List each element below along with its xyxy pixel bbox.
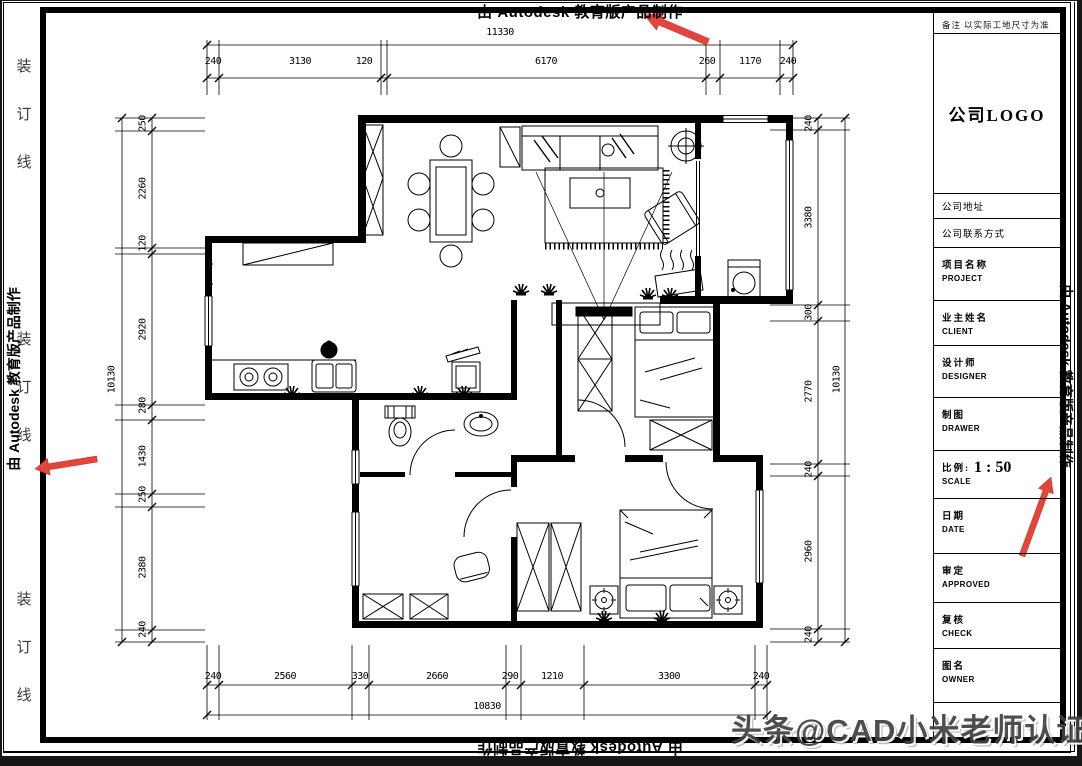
dim-bottom: 240	[183, 671, 243, 682]
kitchen-counter	[212, 243, 356, 392]
field-label-cn: 图名	[942, 658, 1060, 672]
red-arrow-left	[35, 456, 98, 475]
autodesk-watermark-right: 由 Autodesk 教育版产品制作	[1056, 256, 1076, 496]
dining-table	[408, 135, 494, 267]
company-address: 公司地址	[934, 193, 1060, 218]
cad-screenshot: { "watermarks": { "autodesk": "由 Autodes…	[0, 0, 1082, 766]
dim-bottom: 240	[731, 671, 791, 682]
coffee-table	[570, 178, 630, 208]
dim-left-total: 10130	[107, 350, 118, 410]
bedroom1-door-arc	[578, 400, 625, 447]
switch-mark	[284, 386, 300, 396]
field-label-en: CHECK	[942, 629, 1060, 638]
study-door-arc	[464, 490, 511, 537]
master-door-arc	[666, 462, 713, 509]
plant-mark	[513, 284, 529, 294]
field-client: 业主姓名 CLIENT	[934, 300, 1060, 345]
red-arrows	[35, 13, 1053, 557]
dim-top: 3130	[270, 56, 330, 67]
dim-left: 250	[138, 94, 149, 154]
dim-left: 120	[138, 214, 149, 274]
field-label-en: CLIENT	[942, 327, 1060, 336]
bedroom1-bed	[635, 307, 714, 417]
dim-right-total: 10130	[832, 350, 843, 410]
washing-machine	[728, 260, 760, 297]
dim-bottom: 2560	[255, 671, 315, 682]
scale-value: 1 : 50	[974, 459, 1011, 477]
dim-right: 2960	[804, 522, 815, 582]
field-date: 日期 DATE	[934, 498, 1060, 553]
lamp-icon	[716, 588, 740, 612]
field-approved: 审定 APPROVED	[934, 553, 1060, 602]
field-label-cn: 日期	[942, 508, 1060, 522]
switch-mark	[640, 288, 656, 298]
dim-top-total: 11330	[470, 27, 530, 38]
floor-plan-svg	[0, 0, 1082, 766]
field-label-en: APPROVED	[942, 580, 1060, 589]
bathroom-door-arc	[410, 430, 455, 475]
dim-bottom: 3300	[639, 671, 699, 682]
field-project: 项目名称 PROJECT	[934, 247, 1060, 300]
furniture	[212, 125, 760, 621]
autodesk-watermark-left: 由 Autodesk 教育版产品制作	[4, 259, 24, 499]
bedroom1-wardrobe	[578, 307, 612, 411]
field-check: 复核 CHECK	[934, 602, 1060, 648]
field-label-cn: 制图	[942, 407, 1060, 421]
dim-top: 6170	[516, 56, 576, 67]
field-label-cn: 设计师	[942, 355, 1060, 369]
field-label-en: DATE	[942, 525, 1060, 534]
lamp-icon	[592, 588, 616, 612]
dim-right: 2770	[804, 362, 815, 422]
dim-right: 240	[804, 94, 815, 154]
study-wardrobe	[363, 594, 448, 619]
dim-left: 250	[138, 465, 149, 525]
plant-mark	[541, 284, 557, 294]
switch-mark	[596, 611, 612, 621]
master-wardrobe	[517, 523, 581, 611]
field-drawer: 制图 DRAWER	[934, 397, 1060, 450]
dim-bottom-total: 10830	[457, 701, 517, 712]
dim-left: 240	[138, 600, 149, 660]
field-label-cn: 复核	[942, 612, 1060, 626]
field-label-cn: 项目名称	[942, 257, 1060, 271]
field-label-en: SCALE	[942, 477, 1060, 486]
windows	[204, 114, 794, 586]
field-label-en: PROJECT	[942, 274, 1060, 283]
dim-right: 3380	[804, 188, 815, 248]
title-block-note: 备注 以实际工地尺寸为准	[934, 13, 1060, 33]
switch-mark	[662, 288, 678, 298]
dim-left: 2380	[138, 538, 149, 598]
walls	[205, 115, 793, 628]
study-chair	[452, 550, 491, 583]
bedroom1-dresser	[650, 420, 712, 450]
dim-top: 120	[334, 56, 394, 67]
field-label-cn: 审定	[942, 563, 1060, 577]
dim-top: 240	[183, 56, 243, 67]
bathroom-sink	[464, 412, 498, 436]
sofa	[500, 126, 658, 170]
switch-mark	[654, 611, 670, 621]
field-label-cn: 业主姓名	[942, 310, 1060, 324]
armchair	[643, 190, 700, 246]
field-label-en: DRAWER	[942, 424, 1060, 433]
field-owner: 图名 OWNER	[934, 648, 1060, 702]
company-logo: 公司LOGO	[934, 33, 1060, 193]
dim-bottom: 330	[330, 671, 390, 682]
dim-right: 300	[804, 283, 815, 343]
toilet	[385, 406, 415, 446]
switch-mark	[412, 386, 428, 396]
autodesk-watermark-bottom: 由 Autodesk 教育版产品制作	[415, 738, 745, 759]
dim-top: 240	[758, 56, 818, 67]
autodesk-watermark-top: 由 Autodesk 教育版产品制作	[415, 1, 745, 22]
dim-left: 2920	[138, 300, 149, 360]
dim-bottom: 1210	[522, 671, 582, 682]
dimension-lines	[115, 40, 850, 720]
rug	[545, 168, 666, 246]
dim-right: 240	[804, 440, 815, 500]
field-label-en: OWNER	[942, 675, 1060, 684]
dim-bottom: 2660	[407, 671, 467, 682]
company-contact: 公司联系方式	[934, 218, 1060, 247]
dim-right: 240	[804, 605, 815, 665]
field-scale: 比例: SCALE 1 : 50	[934, 450, 1060, 498]
hall-console	[446, 347, 480, 392]
title-block: 备注 以实际工地尺寸为准 公司LOGO 公司地址 公司联系方式 项目名称 PRO…	[933, 13, 1060, 737]
field-label-en: DESIGNER	[942, 372, 1060, 381]
dim-left: 2260	[138, 159, 149, 219]
toutiao-watermark: 头条@CAD小米老师认证	[731, 705, 1082, 750]
field-designer: 设计师 DESIGNER	[934, 345, 1060, 397]
master-bed	[620, 510, 712, 618]
